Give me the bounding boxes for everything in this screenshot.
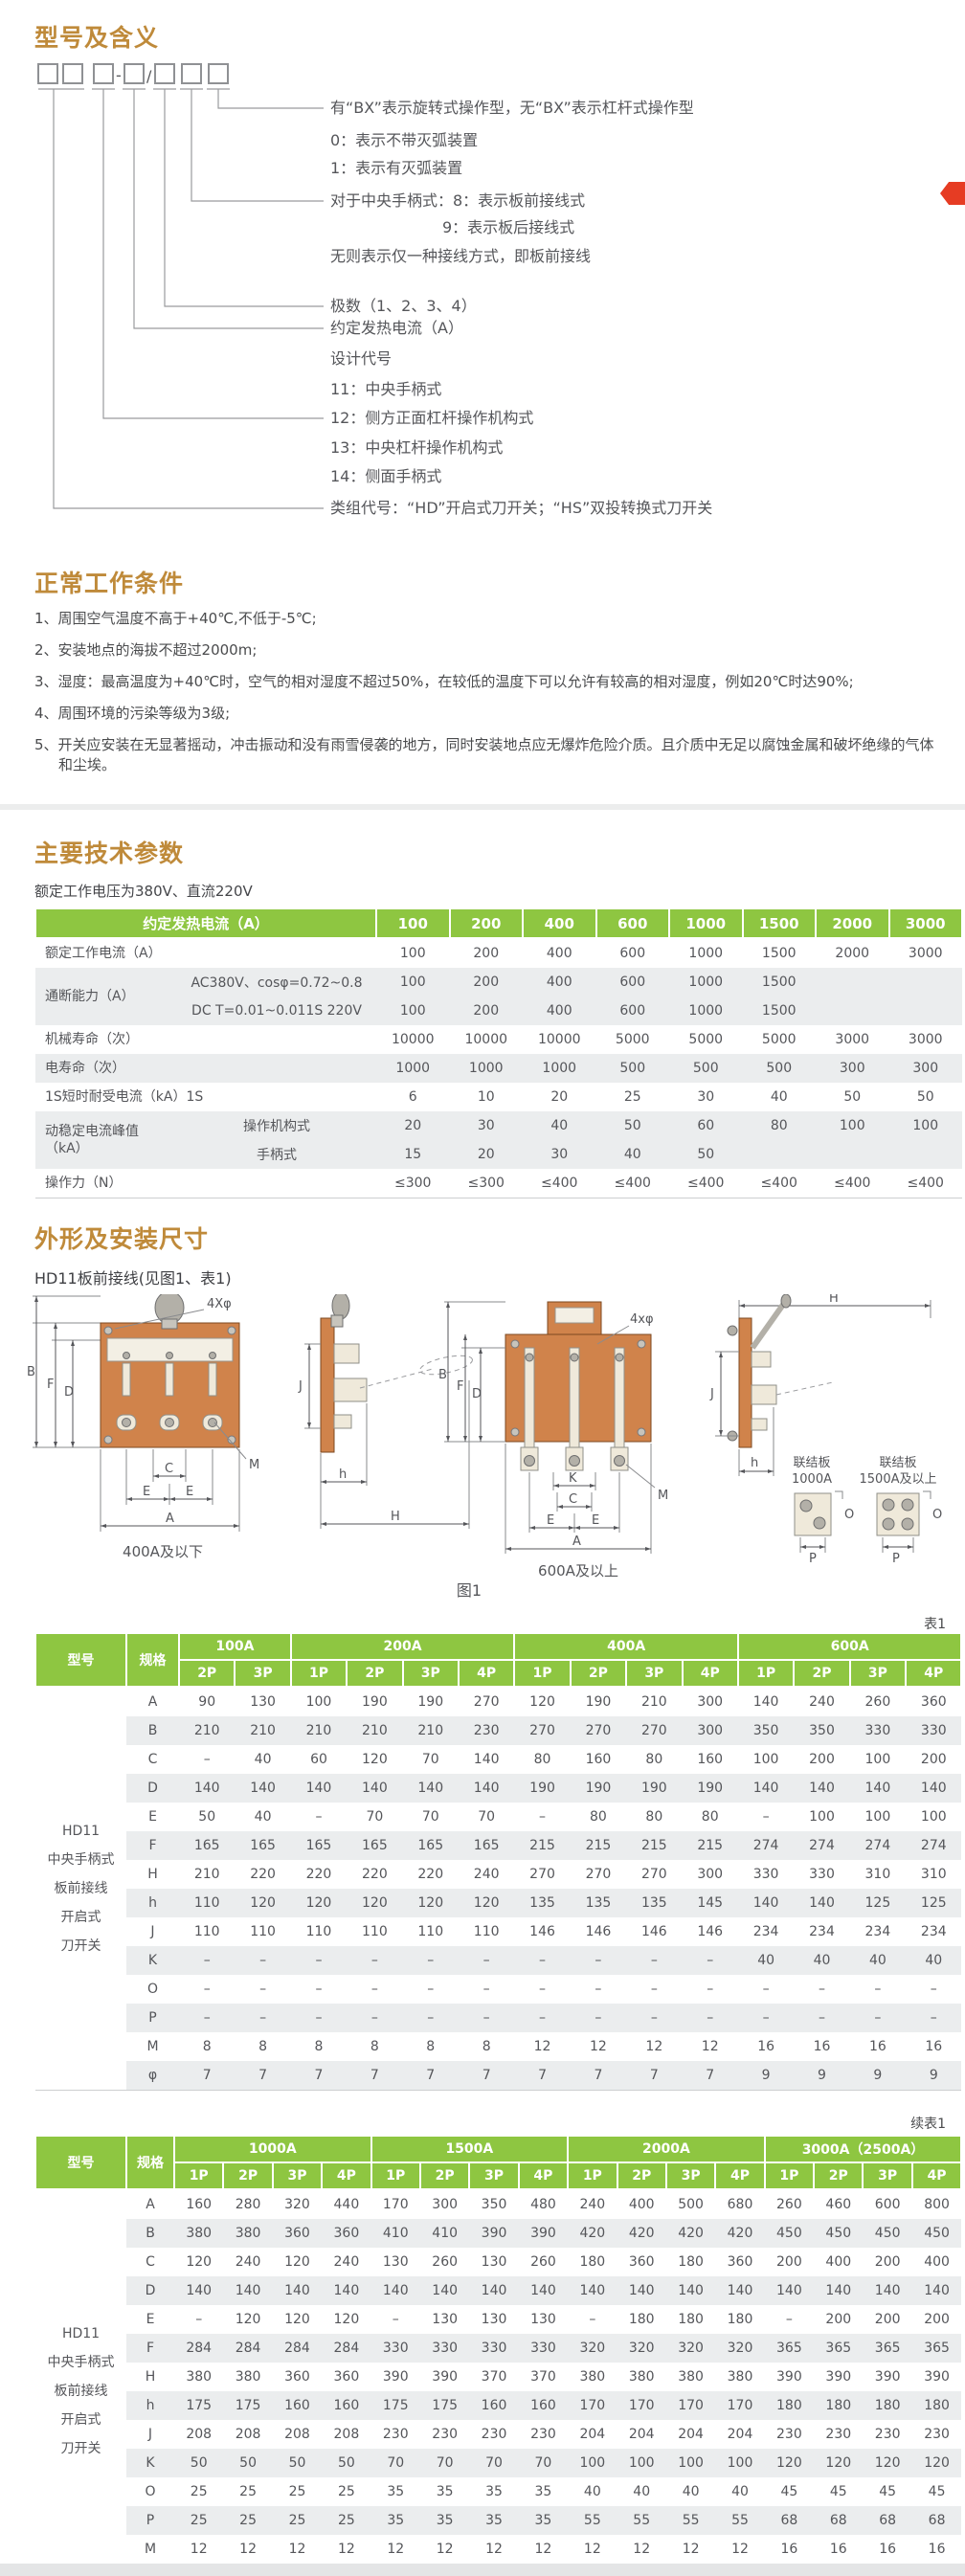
dim-P: P (809, 1552, 817, 1566)
cell-value: 135 (571, 1889, 626, 1917)
cell-value: 420 (715, 2219, 764, 2248)
cell-value: 140 (765, 2276, 814, 2305)
cell-value: – (291, 1803, 347, 1831)
dim-table2-body: HD11 中央手柄式 板前接线 开启式 刀开关A1602803204401703… (35, 2189, 961, 2576)
cell-value: 1500 (743, 938, 817, 968)
model-code-leader-lines (38, 89, 324, 508)
cell-value: 370 (469, 2363, 518, 2391)
cell-value: 165 (403, 1831, 459, 1860)
cell-value: – (235, 1946, 290, 1975)
cell-value: 80 (571, 1803, 626, 1831)
cell-value: 12 (519, 2535, 568, 2564)
cell-value: 40 (738, 1946, 794, 1975)
cell-value: 284 (322, 2334, 370, 2363)
model-label-wiring8: 对于中央手柄式：8：表示板前接线式 (330, 191, 585, 210)
model-label-design-13: 13：中央杠杆操作机构式 (330, 438, 503, 457)
dim-E: E (186, 1485, 193, 1499)
cell-value: – (738, 1975, 794, 2004)
cell-value: 175 (174, 2391, 223, 2420)
tech-table-header: 约定发热电流（A）1002004006001000150020003000 (35, 908, 962, 938)
cell-value: 380 (666, 2363, 715, 2391)
row-spec: C (126, 1745, 179, 1774)
cell-value: 130 (469, 2305, 518, 2334)
cell-value: 140 (273, 2276, 322, 2305)
cell-value: 200 (450, 938, 524, 968)
connector-1500-label: 联结板 (879, 1456, 916, 1470)
cell-value: 45 (912, 2477, 961, 2506)
cell-value: 165 (459, 1831, 514, 1860)
cell-value (816, 1140, 889, 1169)
cell-value: 365 (814, 2334, 863, 2363)
cell-value: 12 (223, 2535, 272, 2564)
cell-value: 300 (683, 1716, 738, 1745)
cell-value: 35 (420, 2506, 469, 2535)
cell-value: 500 (666, 2189, 715, 2219)
cell-value: 180 (912, 2391, 961, 2420)
cell-value: 10000 (376, 1025, 450, 1054)
cell-value: 140 (459, 1774, 514, 1803)
cell-value: – (571, 1946, 626, 1975)
cell-value: 360 (322, 2219, 370, 2248)
column-header: 200 (450, 908, 524, 938)
table-row: E5040–707070–808080–100100100 (35, 1803, 961, 1831)
cell-value: 400 (523, 997, 596, 1025)
table1-tag: 表1 (34, 1614, 946, 1633)
cell-value: 330 (850, 1716, 906, 1745)
cell-value: 380 (174, 2219, 223, 2248)
cell-value: 234 (906, 1917, 961, 1946)
cell-value (743, 1140, 817, 1169)
cell-value: – (179, 1975, 235, 2004)
row-label: 额定工作电流（A） (35, 938, 376, 968)
table-row: F165165165165165165215215215215274274274… (35, 1831, 961, 1860)
cell-value: 208 (223, 2420, 272, 2449)
row-spec: M (126, 2032, 179, 2061)
cell-value (889, 997, 963, 1025)
cell-value: 12 (371, 2535, 420, 2564)
cell-value: 360 (273, 2219, 322, 2248)
cell-value: 9 (850, 2061, 906, 2091)
cell-value: 50 (322, 2449, 370, 2477)
cell-value: – (371, 2305, 420, 2334)
cell-value: 200 (906, 1745, 961, 1774)
cell-value: 140 (666, 2276, 715, 2305)
cell-value: 120 (403, 1889, 459, 1917)
cell-value: 380 (174, 2363, 223, 2391)
dim-h: h (751, 1456, 758, 1470)
table-row: h175175160160175175160160170170170170180… (35, 2391, 961, 2420)
cell-value: 400 (814, 2248, 863, 2276)
cell-value: 110 (291, 1917, 347, 1946)
cell-value: – (179, 1946, 235, 1975)
row-spec: K (126, 2449, 174, 2477)
table-row: HD11 中央手柄式 板前接线 开启式 刀开关A9013010019019027… (35, 1687, 961, 1716)
cell-value: 120 (174, 2248, 223, 2276)
cell-value: 234 (738, 1917, 794, 1946)
cell-value: ≤400 (743, 1169, 817, 1198)
cell-value: 165 (347, 1831, 402, 1860)
model-label-class-code: 类组代号：“HD”开启式刀开关；“HS”双投转换式刀开关 (330, 499, 712, 517)
table-row: 机械寿命（次）100001000010000500050005000300030… (35, 1025, 962, 1054)
cell-value: 110 (179, 1889, 235, 1917)
cell-value: 330 (794, 1860, 849, 1889)
column-header: 2P (571, 1660, 626, 1687)
cell-value: 9 (738, 2061, 794, 2091)
cell-value: 140 (738, 1889, 794, 1917)
cell-value: 240 (223, 2248, 272, 2276)
cell-value: 100 (715, 2449, 764, 2477)
dim-E: E (547, 1513, 554, 1528)
cell-value: 140 (794, 1774, 849, 1803)
cell-value: 400 (523, 938, 596, 968)
table-row: h110120120120120120135135135145140140125… (35, 1889, 961, 1917)
column-header: 型号 (35, 2136, 126, 2189)
cell-value: 80 (626, 1745, 682, 1774)
dim-H: H (391, 1510, 400, 1524)
table-row: C–4060120701408016080160100200100200 (35, 1745, 961, 1774)
cell-value: – (571, 1975, 626, 2004)
cell-value: 380 (568, 2363, 617, 2391)
cell-value: 274 (906, 1831, 961, 1860)
rated-voltage-note: 额定工作电压为380V、直流220V (34, 881, 253, 901)
cell-value: 270 (626, 1716, 682, 1745)
cell-value: 270 (626, 1860, 682, 1889)
cell-value: 220 (291, 1860, 347, 1889)
cell-value: 1000 (376, 1054, 450, 1083)
cell-value: 135 (514, 1889, 570, 1917)
cell-value: 300 (889, 1054, 963, 1083)
dim-M: M (658, 1489, 668, 1503)
cell-value: 210 (291, 1716, 347, 1745)
cell-value: ≤400 (596, 1169, 670, 1198)
cell-value: 12 (683, 2032, 738, 2061)
row-spec: J (126, 1917, 179, 1946)
cell-value: 210 (347, 1716, 402, 1745)
cell-value: – (403, 1946, 459, 1975)
cell-value: 180 (765, 2391, 814, 2420)
row-label: 操作力（N） (35, 1169, 376, 1198)
cell-value: 180 (617, 2305, 666, 2334)
cell-value: 120 (863, 2449, 911, 2477)
cell-value: 260 (420, 2248, 469, 2276)
cell-value: 1500 (743, 997, 817, 1025)
tech-params-table: 约定发热电流（A）1002004006001000150020003000 额定… (34, 907, 963, 1198)
cell-value: 110 (235, 1917, 290, 1946)
cell-value: 320 (715, 2334, 764, 2363)
cell-value: 6 (376, 1083, 450, 1111)
column-header: 1P (291, 1660, 347, 1687)
cell-value: 40 (523, 1111, 596, 1140)
cell-value: 45 (863, 2477, 911, 2506)
cell-value: 16 (906, 2032, 961, 2061)
cell-value: – (347, 1975, 402, 2004)
dim-J: J (298, 1379, 303, 1394)
cell-value: 35 (519, 2506, 568, 2535)
cell-value: 80 (626, 1803, 682, 1831)
cell-value: 390 (371, 2363, 420, 2391)
column-header: 规格 (126, 2136, 174, 2189)
cell-value: 160 (174, 2189, 223, 2219)
column-header: 400A (514, 1633, 738, 1660)
cell-value: 210 (179, 1716, 235, 1745)
cell-value: 200 (863, 2248, 911, 2276)
cell-value: 204 (666, 2420, 715, 2449)
cell-value: – (291, 2004, 347, 2032)
column-header: 3000A（2500A） (765, 2136, 962, 2162)
cell-value: 3000 (816, 1025, 889, 1054)
row-spec: M (126, 2535, 174, 2564)
connector-1500-rating: 1500A及以上 (860, 1472, 937, 1487)
column-header: 4P (683, 1660, 738, 1687)
row-spec: J (126, 2420, 174, 2449)
cell-value: 130 (469, 2248, 518, 2276)
cell-value: 20 (450, 1140, 524, 1169)
cell-value: 190 (347, 1687, 402, 1716)
cell-value: 200 (450, 997, 524, 1025)
cell-value: 68 (863, 2506, 911, 2535)
cell-value: 140 (738, 1774, 794, 1803)
caption-600A: 600A及以上 (538, 1562, 618, 1579)
cell-value: 230 (469, 2420, 518, 2449)
cell-value: 20 (523, 1083, 596, 1111)
cell-value: 140 (322, 2276, 370, 2305)
cell-value: 140 (469, 2276, 518, 2305)
cell-value: 1000 (669, 997, 743, 1025)
cell-value: 15 (376, 1140, 450, 1169)
cell-value: – (235, 1975, 290, 2004)
cell-value: 600 (596, 968, 670, 997)
cell-value: 40 (617, 2477, 666, 2506)
cell-value: 200 (765, 2248, 814, 2276)
cell-value: 420 (666, 2219, 715, 2248)
cell-value: ≤300 (376, 1169, 450, 1198)
cell-value: 160 (469, 2391, 518, 2420)
cell-value: – (906, 2004, 961, 2032)
cell-value: 208 (174, 2420, 223, 2449)
cell-value: 160 (322, 2391, 370, 2420)
column-header: 4P (715, 2162, 764, 2189)
table-row: D140140140140140140190190190190140140140… (35, 1774, 961, 1803)
cell-value: 200 (450, 968, 524, 997)
cell-value: 80 (683, 1803, 738, 1831)
model-label-design-14: 14：侧面手柄式 (330, 467, 441, 485)
catalog-page: 型号及含义 - / 有“BX”表示旋转式操作型，无“BX”表示杠杆式操作型 0：… (0, 0, 965, 2576)
cell-value: 80 (514, 1745, 570, 1774)
cell-value: 330 (469, 2334, 518, 2363)
cell-value: 125 (850, 1889, 906, 1917)
cell-value: 100 (666, 2449, 715, 2477)
cell-value: 208 (273, 2420, 322, 2449)
dim-D: D (64, 1385, 74, 1400)
table-row: D140140140140140140140140140140140140140… (35, 2276, 961, 2305)
dim-P: P (892, 1552, 900, 1566)
cell-value: 270 (571, 1860, 626, 1889)
column-header: 200A (291, 1633, 515, 1660)
cell-value: 12 (174, 2535, 223, 2564)
cell-value: 140 (715, 2276, 764, 2305)
cell-value: 100 (376, 968, 450, 997)
cell-value: 7 (291, 2061, 347, 2091)
cell-value: 100 (889, 1111, 963, 1140)
row-spec: D (126, 2276, 174, 2305)
cell-value: 300 (683, 1860, 738, 1889)
cell-value: 12 (715, 2535, 764, 2564)
table-row: 电寿命（次）100010001000500500500300300 (35, 1054, 962, 1083)
cell-value: 110 (179, 1917, 235, 1946)
cell-value: 70 (459, 1803, 514, 1831)
cell-value: – (291, 1975, 347, 2004)
model-label-bx: 有“BX”表示旋转式操作型，无“BX”表示杠杆式操作型 (330, 99, 694, 117)
cell-value: 25 (273, 2506, 322, 2535)
cell-value: 45 (814, 2477, 863, 2506)
cell-value: 100 (376, 938, 450, 968)
table-row: O–––––––––––––– (35, 1975, 961, 2004)
column-header: 1P (371, 2162, 420, 2189)
table-row: φ77777777779999 (35, 2061, 961, 2091)
cell-value: – (738, 1803, 794, 1831)
cell-value: 120 (291, 1889, 347, 1917)
model-label-arc0: 0：表示不带灭弧装置 (330, 131, 478, 149)
cell-value: 360 (906, 1687, 961, 1716)
cell-value: 100 (291, 1687, 347, 1716)
cell-value: 12 (322, 2535, 370, 2564)
table-row: K505050507070707010010010010012012012012… (35, 2449, 961, 2477)
cell-value: 12 (571, 2032, 626, 2061)
cell-value: 80 (743, 1111, 817, 1140)
cell-value: – (683, 1946, 738, 1975)
cell-value: 2000 (816, 938, 889, 968)
row-spec: E (126, 2305, 174, 2334)
table-row: 额定工作电流（A）1002004006001000150020003000 (35, 938, 962, 968)
row-label: 通断能力（A） (35, 968, 177, 1025)
cell-value: 360 (273, 2363, 322, 2391)
table-row: J110110110110110110146146146146234234234… (35, 1917, 961, 1946)
cell-value: 50 (174, 2449, 223, 2477)
dim-B: B (27, 1365, 35, 1379)
connector-plate-1000: 联结板 1000A O P (792, 1456, 854, 1566)
table-row: H210220220220220240270270270300330330310… (35, 1860, 961, 1889)
cell-value: 50 (179, 1803, 235, 1831)
cell-value: 180 (666, 2305, 715, 2334)
cell-value: 140 (174, 2276, 223, 2305)
cell-value: 50 (273, 2449, 322, 2477)
table-row: P–––––––––––––– (35, 2004, 961, 2032)
cell-value: – (459, 1975, 514, 2004)
cell-value: ≤400 (889, 1169, 963, 1198)
dim-C: C (569, 1492, 577, 1507)
cell-value: 3000 (889, 1025, 963, 1054)
cell-value: 100 (906, 1803, 961, 1831)
connector-1000-label: 联结板 (793, 1456, 830, 1470)
cell-value: 120 (347, 1745, 402, 1774)
cell-value: 140 (912, 2276, 961, 2305)
drawing-front-400: B F D C E E A M 4Xφ 400A及以下 (27, 1294, 259, 1560)
row-spec: F (126, 1831, 179, 1860)
section-title-tech: 主要技术参数 (34, 835, 184, 869)
cell-value: 110 (347, 1917, 402, 1946)
column-header: 3P (850, 1660, 906, 1687)
cell-value: 50 (669, 1140, 743, 1169)
cell-value: 25 (596, 1083, 670, 1111)
cell-value: 410 (420, 2219, 469, 2248)
cell-value: 120 (765, 2449, 814, 2477)
page-footer-band (0, 2564, 965, 2576)
cell-value: 145 (683, 1889, 738, 1917)
cell-value: 140 (371, 2276, 420, 2305)
holes-callout-600: 4xφ (630, 1312, 654, 1327)
cell-value: 230 (519, 2420, 568, 2449)
table-row: M12121212121212121212121216161616 (35, 2535, 961, 2564)
cell-value: – (850, 1975, 906, 2004)
table-row: 1S短时耐受电流（kA）1S610202530405050 (35, 1083, 962, 1111)
cell-value: 12 (626, 2032, 682, 2061)
cell-value: 120 (322, 2305, 370, 2334)
cell-value (889, 968, 963, 997)
column-header: 600A (738, 1633, 962, 1660)
cell-value: 215 (571, 1831, 626, 1860)
cell-value: 800 (912, 2189, 961, 2219)
cell-value: 140 (235, 1774, 290, 1803)
section-title-model: 型号及含义 (34, 19, 159, 54)
connector-plate-1500: 联结板 1500A及以上 O P (860, 1456, 943, 1566)
outline-drawings: B F D C E E A M 4Xφ 400A及以下 (19, 1294, 946, 1602)
cell-value: 35 (420, 2477, 469, 2506)
row-spec: E (126, 1803, 179, 1831)
table-row: O25252525353535354040404045454545 (35, 2477, 961, 2506)
cell-value: 9 (906, 2061, 961, 2091)
model-cell: HD11 中央手柄式 板前接线 开启式 刀开关 (35, 1687, 126, 2091)
cell-value: 16 (765, 2535, 814, 2564)
cell-value: 50 (816, 1083, 889, 1111)
cell-value: 400 (523, 968, 596, 997)
cell-value: 40 (596, 1140, 670, 1169)
dim-D: D (472, 1387, 482, 1401)
cell-value: 380 (223, 2219, 272, 2248)
row-spec: H (126, 1860, 179, 1889)
row-label: 电寿命（次） (35, 1054, 376, 1083)
cell-value: 146 (683, 1917, 738, 1946)
cell-value: 175 (420, 2391, 469, 2420)
cell-value: 68 (814, 2506, 863, 2535)
column-header: 3P (273, 2162, 322, 2189)
row-spec: C (126, 2248, 174, 2276)
column-header: 3P (863, 2162, 911, 2189)
cell-value: 12 (273, 2535, 322, 2564)
cell-value: 5000 (596, 1025, 670, 1054)
cell-value: 140 (519, 2276, 568, 2305)
cell-value: 130 (371, 2248, 420, 2276)
cell-value: 60 (291, 1745, 347, 1774)
model-label-wiring-default: 无则表示仅一种接线方式，即板前接线 (330, 247, 591, 265)
cell-value: 50 (223, 2449, 272, 2477)
cell-value: 210 (235, 1716, 290, 1745)
cell-value: 274 (738, 1831, 794, 1860)
column-header: 2000A (568, 2136, 765, 2162)
cell-value: 220 (235, 1860, 290, 1889)
row-spec: B (126, 2219, 174, 2248)
cell-value: 25 (223, 2477, 272, 2506)
cell-value: 320 (666, 2334, 715, 2363)
cell-value: 460 (814, 2189, 863, 2219)
cell-value: 40 (794, 1946, 849, 1975)
cell-value: 190 (571, 1774, 626, 1803)
cell-value: 25 (174, 2506, 223, 2535)
cell-value: 140 (863, 2276, 911, 2305)
column-header: 400 (523, 908, 596, 938)
cell-value: 50 (889, 1083, 963, 1111)
condition-item: 3、湿度：最高温度为+40℃时，空气的相对湿度不超过50%，在较低的温度下可以允… (34, 672, 946, 692)
cell-value: 330 (420, 2334, 469, 2363)
